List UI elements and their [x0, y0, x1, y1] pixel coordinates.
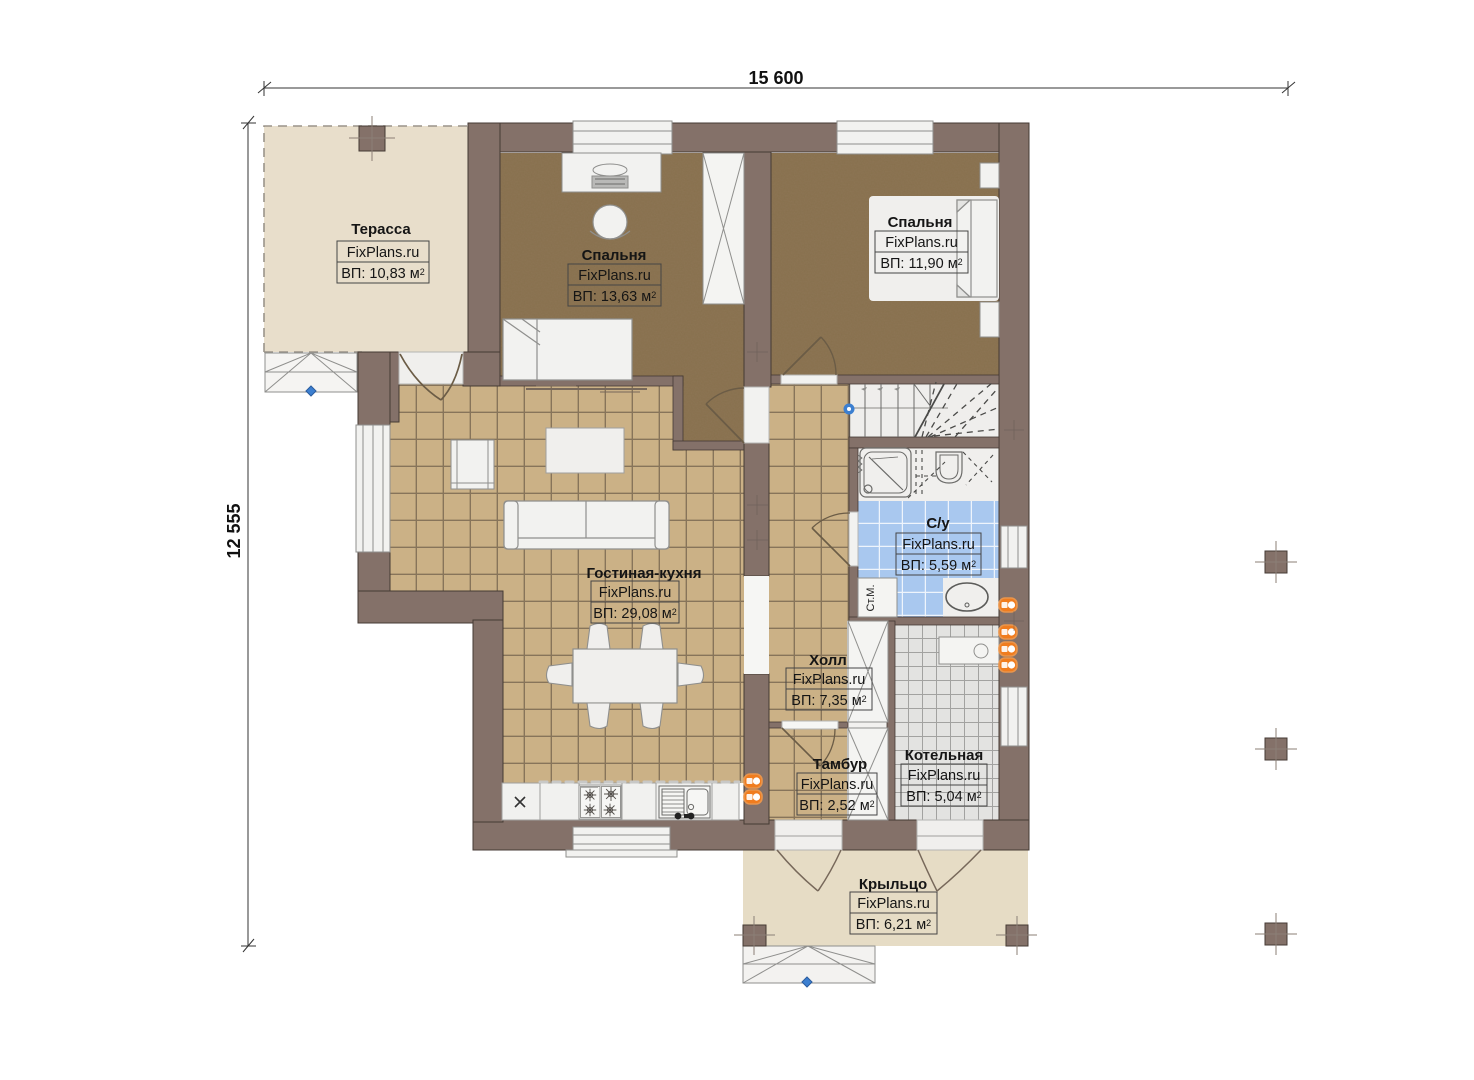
- svg-text:FixPlans.ru: FixPlans.ru: [347, 245, 420, 261]
- svg-text:Ст.М.: Ст.М.: [865, 584, 877, 611]
- svg-text:FixPlans.ru: FixPlans.ru: [578, 268, 651, 284]
- svg-text:Терасса: Терасса: [351, 221, 411, 238]
- svg-text:ВП: 10,83 м2: ВП: 10,83 м2: [341, 266, 424, 282]
- svg-text:ВП: 5,59 м2: ВП: 5,59 м2: [901, 558, 976, 574]
- svg-text:ВП: 6,21 м2: ВП: 6,21 м2: [856, 917, 931, 933]
- svg-text:15 600: 15 600: [748, 68, 803, 88]
- svg-text:ВП: 29,08 м2: ВП: 29,08 м2: [593, 606, 676, 622]
- svg-text:Тамбур: Тамбур: [813, 756, 867, 773]
- svg-text:Холл: Холл: [809, 652, 847, 669]
- svg-text:ВП: 5,04 м2: ВП: 5,04 м2: [906, 789, 981, 805]
- svg-text:Котельная: Котельная: [905, 747, 984, 764]
- svg-text:ВП: 2,52 м2: ВП: 2,52 м2: [799, 798, 874, 814]
- svg-text:FixPlans.ru: FixPlans.ru: [599, 585, 672, 601]
- svg-text:Спальня: Спальня: [582, 247, 647, 264]
- svg-text:Спальня: Спальня: [888, 214, 953, 231]
- svg-text:FixPlans.ru: FixPlans.ru: [857, 896, 930, 912]
- svg-text:FixPlans.ru: FixPlans.ru: [801, 777, 874, 793]
- svg-text:Крыльцо: Крыльцо: [859, 876, 927, 893]
- svg-text:Гостиная-кухня: Гостиная-кухня: [587, 565, 702, 582]
- svg-text:FixPlans.ru: FixPlans.ru: [793, 672, 866, 688]
- svg-text:FixPlans.ru: FixPlans.ru: [908, 768, 981, 784]
- svg-text:ВП: 11,90 м2: ВП: 11,90 м2: [880, 256, 962, 272]
- svg-text:С/у: С/у: [926, 515, 950, 532]
- svg-text:FixPlans.ru: FixPlans.ru: [902, 537, 975, 553]
- svg-text:ВП: 13,63 м2: ВП: 13,63 м2: [573, 289, 656, 305]
- svg-text:12 555: 12 555: [224, 503, 244, 558]
- svg-text:FixPlans.ru: FixPlans.ru: [885, 235, 958, 251]
- svg-text:ВП: 7,35 м2: ВП: 7,35 м2: [791, 693, 866, 709]
